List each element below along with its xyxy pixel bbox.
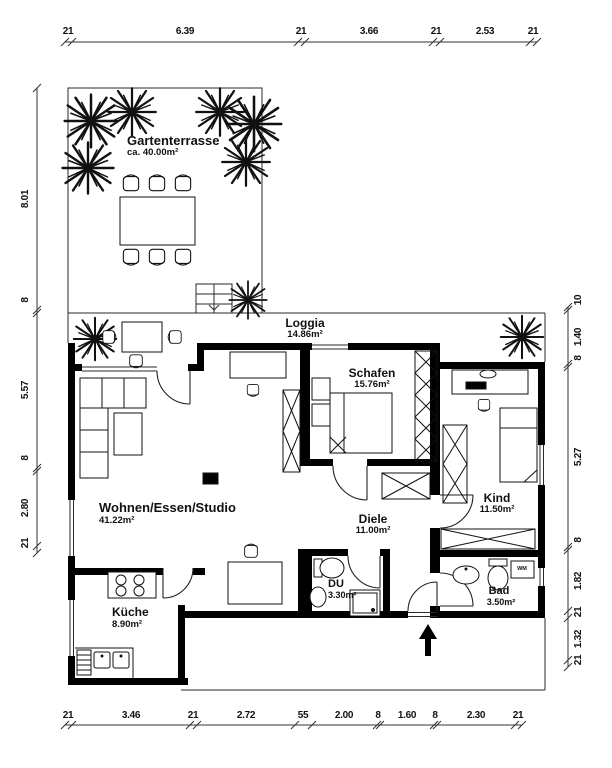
washing-machine-label: WM [517,567,527,573]
stove [108,572,156,598]
dim-label: 21 [21,538,31,549]
dim-label: 2.00 [335,711,353,721]
studio-desk [230,352,286,378]
kids-bed [500,408,537,482]
dim-label: 1.60 [398,711,416,721]
room-area-kind: 11.50m² [480,505,515,515]
dim-label: 2.72 [237,711,255,721]
dim-label: 21 [63,27,74,37]
loggia-door [157,371,190,404]
plant-icon [65,95,118,148]
room-label-loggia: Loggia [285,317,324,329]
dim-label: 21 [574,607,584,618]
living-room-furniture [80,352,286,604]
dining-table [228,562,282,604]
dim-label: 8 [21,455,31,460]
sofa [80,408,108,478]
dim-label: 55 [298,711,309,721]
dim-label: 21 [63,711,74,721]
room-area-wohnen: 41.22m² [99,516,134,526]
coffee-table [114,413,142,455]
dim-label: 8 [21,297,31,302]
nightstand [312,378,330,400]
plant-icon [227,97,281,151]
dim-label: 21 [513,711,524,721]
room-area-schafen: 15.76m² [354,380,389,390]
kids-room-furniture [452,370,537,482]
dim-label: 8 [574,355,584,360]
dim-label: 5.57 [21,381,31,399]
hall-wardrobe [382,473,430,499]
plant-icon [222,138,270,186]
kids-wardrobe [443,425,467,503]
dim-label: 3.46 [122,711,140,721]
kids-chair [478,399,489,411]
dim-label: 1.82 [574,572,584,590]
room-area-gartenterrasse: ca. 40.00m² [127,148,178,158]
dim-label: 5.27 [574,448,584,466]
toilet [320,558,344,578]
dining-chair [245,544,258,557]
nightstand [312,404,330,426]
bedroom-door [333,466,367,500]
room-label-schafen: Schafen [349,367,396,379]
dim-label: 3.66 [360,27,378,37]
kitchen-sink [113,652,129,668]
dim-label: 6.39 [176,27,194,37]
living-wardrobe [283,390,300,472]
room-area-diele: 11.00m² [356,526,391,536]
dim-label: 2.30 [467,711,485,721]
dim-label: 21 [574,655,584,666]
laptop-icon [466,382,486,389]
dishwasher [77,650,91,675]
room-label-gartenterrasse: Gartenterrasse [127,134,220,147]
dim-label: 8 [574,537,584,542]
room-area-du: 3.30m² [328,591,357,600]
plant-icon [63,143,114,194]
toilet [489,559,507,566]
room-area-bad: 3.50m² [487,598,516,607]
floor-plan-drawing [0,0,612,768]
room-label-wohnen: Wohnen/Essen/Studio [99,501,236,514]
terrace-steps [196,284,232,313]
dim-label: 21 [528,27,539,37]
desk-lamp-icon [480,370,496,378]
dim-label: 8.01 [21,190,31,208]
plant-icon [108,88,156,136]
kids-closet [441,529,535,549]
dim-label: 10 [574,295,584,306]
dim-label: 8 [375,711,380,721]
terrace-dining-set [120,175,195,265]
room-label-diele: Diele [359,513,388,525]
floor-plan: 21 6.39 21 3.66 21 2.53 21 21 3.46 21 2.… [0,0,612,768]
kitchen-sink [94,652,110,668]
entrance-arrow-icon [419,624,437,656]
dim-label: 21 [296,27,307,37]
dim-label: 21 [431,27,442,37]
shower-room-fixtures [310,558,380,616]
kitchen-door [163,568,193,598]
dim-label: 21 [188,711,199,721]
dim-label: 1.40 [574,328,584,346]
room-label-du: DU [328,579,344,590]
loggia-table-set [103,322,181,368]
sofa [80,378,146,408]
dim-label: 1.32 [574,630,584,648]
room-area-loggia: 14.86m² [287,330,322,340]
desk-chair [247,384,258,396]
room-label-kueche: Küche [112,606,149,618]
dim-label: 2.53 [476,27,494,37]
dim-label: 2.80 [21,499,31,517]
plant-icon [501,316,544,359]
washbasin [310,587,326,607]
room-label-kind: Kind [484,492,511,504]
pillar [203,473,218,484]
shower-room-door [348,556,380,588]
dim-label: 8 [432,711,437,721]
room-label-bad: Bad [489,586,510,597]
room-area-kueche: 8.90m² [112,620,142,630]
